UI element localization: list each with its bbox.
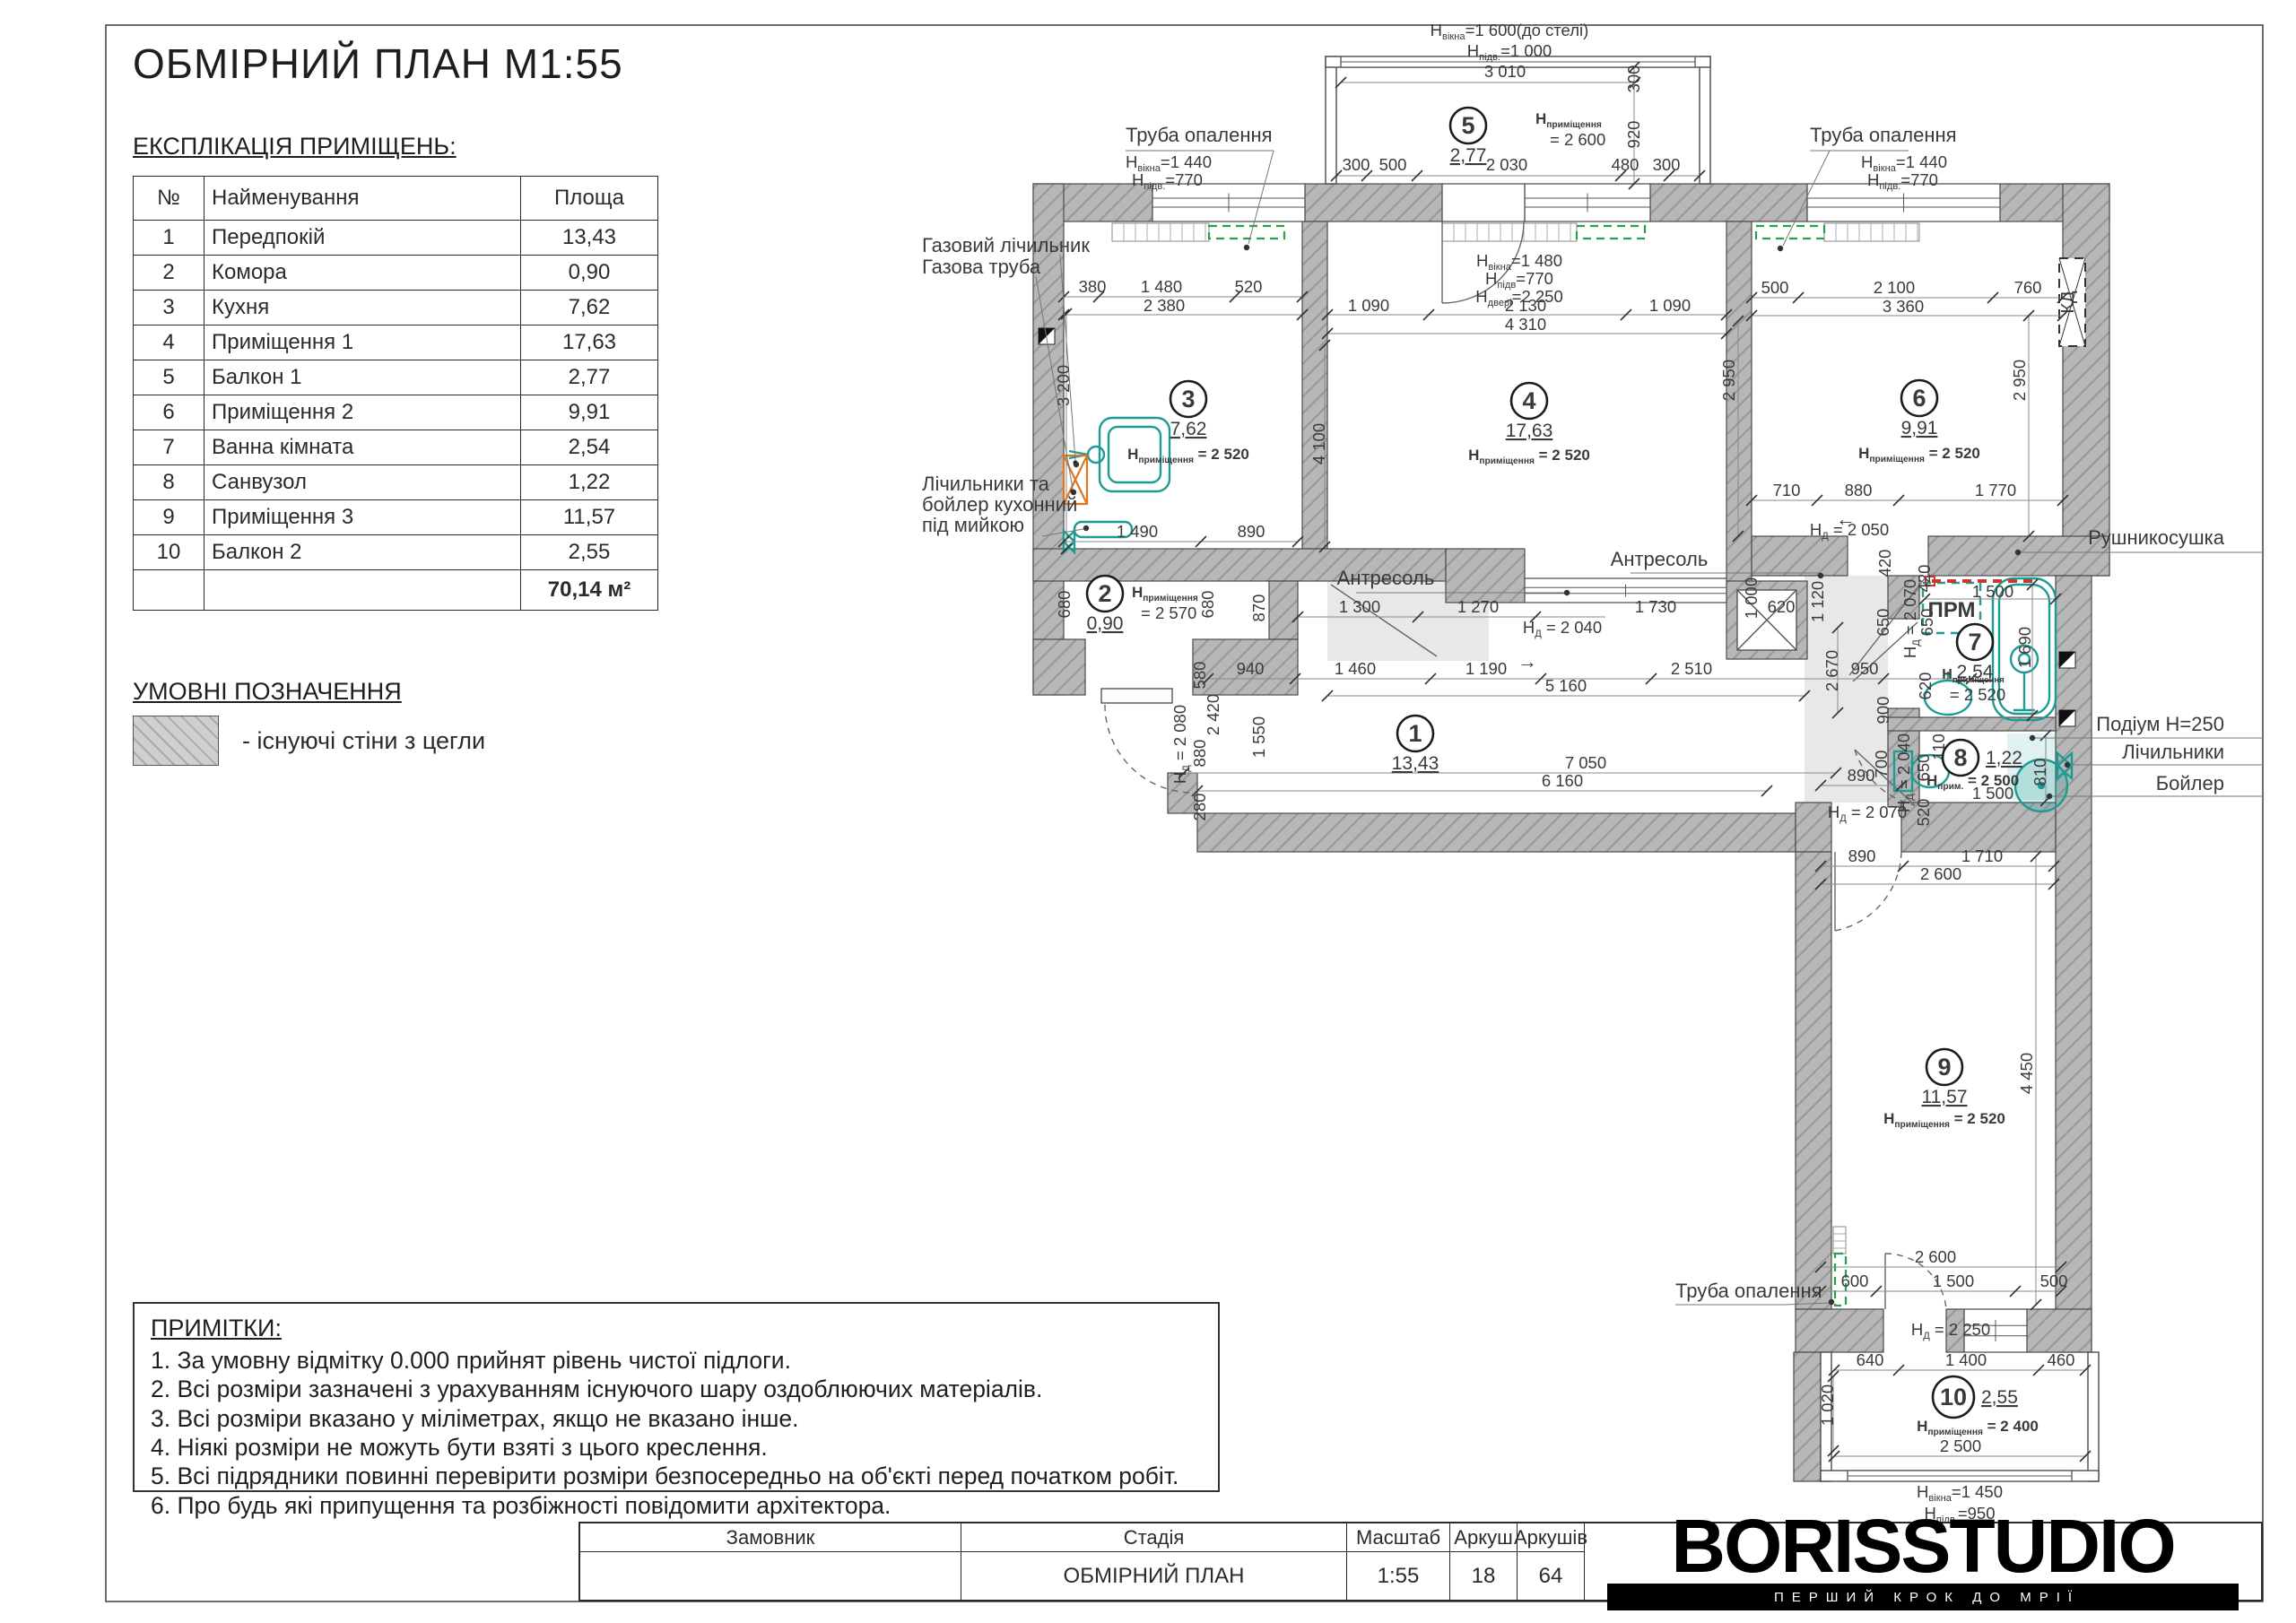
svg-text:1 490: 1 490 [1117,522,1158,541]
svg-text:1 190: 1 190 [1465,659,1507,678]
explication-table: № Найменування Площа 1Передпокій13,432Ко… [133,176,658,611]
svg-text:6 160: 6 160 [1542,771,1583,790]
table-row: 6Приміщення 29,91 [134,395,658,430]
note-item: 3. Всі розміри вказано у міліметрах, якщ… [151,1404,1202,1433]
brick-wall-swatch [133,716,219,766]
svg-text:1 480: 1 480 [1141,277,1182,296]
svg-text:Подіум Н=250: Подіум Н=250 [2096,713,2224,735]
window-glyph [1525,578,1726,603]
svg-text:Лічильники та: Лічильники та [922,473,1050,495]
svg-text:300: 300 [1653,155,1681,174]
room-marker: 417,63 [1506,383,1553,441]
scale-value: 1:55 [1347,1552,1450,1600]
sheets-label: Аркушів [1518,1523,1585,1552]
svg-text:НД = 2 040: НД = 2 040 [1523,618,1602,639]
windows-layer [1152,56,2072,1481]
svg-text:13,43: 13,43 [1392,753,1439,774]
explication-heading: ЕКСПЛІКАЦІЯ ПРИМІЩЕНЬ: [133,133,457,161]
brand-block: BORISSTUDIO ПЕРШИЙ КРОК ДО МРІЇ [1585,1523,2261,1600]
svg-text:Газовий лічильник: Газовий лічильник [922,234,1090,256]
svg-text:1 400: 1 400 [1945,1350,1987,1369]
svg-text:8: 8 [1953,744,1967,771]
table-row: 8Санвузол1,22 [134,465,658,500]
svg-text:1 500: 1 500 [1972,784,2013,803]
svg-text:Антресоль: Антресоль [1337,567,1435,589]
svg-text:1 270: 1 270 [1457,597,1499,616]
notes-box: ПРИМІТКИ: 1. За умовну відмітку 0.000 пр… [133,1302,1220,1492]
svg-text:710: 710 [1773,481,1801,499]
table-row: 1Передпокій13,43 [134,221,658,256]
svg-text:Нвікна=1 450: Нвікна=1 450 [1917,1482,2003,1504]
svg-text:870: 870 [1249,595,1268,622]
svg-text:3: 3 [1181,386,1195,412]
legend-item: - існуючі стіни з цегли [133,716,485,766]
svg-text:Труба опалення: Труба опалення [1126,124,1273,146]
svg-text:2,54: 2,54 [1957,662,1994,682]
svg-text:1 500: 1 500 [1933,1271,1974,1290]
svg-text:4: 4 [1522,387,1535,414]
svg-text:7 050: 7 050 [1565,753,1606,772]
svg-text:3 010: 3 010 [1484,62,1526,81]
svg-text:Нпідв.=1 000: Нпідв.=1 000 [1467,41,1552,63]
table-total-row: 70,14 м² [134,570,658,611]
svg-text:4 450: 4 450 [2017,1053,2036,1094]
svg-text:2,55: 2,55 [1981,1387,2018,1408]
svg-text:НД = 2 250: НД = 2 250 [1911,1320,1990,1341]
svg-text:2 500: 2 500 [1940,1436,1981,1455]
svg-text:5 160: 5 160 [1545,676,1587,695]
svg-text:Труба опалення: Труба опалення [1810,124,1957,146]
svg-text:1: 1 [1408,720,1422,747]
page-title: ОБМІРНИЙ ПЛАН М1:55 [133,39,623,88]
room-marker: 69,91 [1901,380,1938,438]
svg-text:2 950: 2 950 [1719,360,1738,401]
svg-text:2 130: 2 130 [1505,296,1546,315]
svg-text:Нприміщення = 2 520: Нприміщення = 2 520 [1883,1110,2005,1130]
table-row: 5Балкон 12,77 [134,360,658,395]
svg-text:890: 890 [1848,766,1875,785]
svg-text:880: 880 [1845,481,1873,499]
svg-text:2 950: 2 950 [2010,360,2029,401]
notes-list: 1. За умовну відмітку 0.000 прийнят ріве… [151,1346,1202,1520]
explication-body: 1Передпокій13,432Комора0,903Кухня7,624Пр… [134,221,658,611]
drawing-sheet: { "title": "ОБМІРНИЙ ПЛАН М1:55", "expli… [0,0,2296,1623]
col-name-header: Найменування [204,177,521,221]
room-marker: 52,77 [1450,108,1487,166]
svg-text:17,63: 17,63 [1506,421,1553,441]
svg-text:НД = 2 040: НД = 2 040 [1894,733,1916,812]
note-item: 1. За умовну відмітку 0.000 прийнят ріве… [151,1346,1202,1375]
svg-text:4 310: 4 310 [1505,315,1546,334]
svg-text:640: 640 [1857,1350,1884,1369]
svg-text:1 690: 1 690 [2015,627,2034,668]
table-row: 4Приміщення 117,63 [134,325,658,360]
svg-text:Нприміщення = 2 400: Нприміщення = 2 400 [1917,1418,2039,1437]
svg-text:2 100: 2 100 [1874,278,1915,297]
table-row: 10Балкон 22,55 [134,535,658,570]
svg-text:620: 620 [1916,673,1935,700]
room-marker: 113,43 [1392,716,1439,774]
svg-text:1 710: 1 710 [1961,846,2003,865]
table-row: 2Комора0,90 [134,256,658,291]
scale-label: Масштаб [1347,1523,1450,1552]
svg-text:3 360: 3 360 [1883,297,1924,316]
svg-text:950: 950 [1851,659,1879,678]
svg-text:2 420: 2 420 [1204,694,1222,735]
svg-text:280: 280 [1190,794,1209,821]
svg-text:= 2 570: = 2 570 [1141,603,1196,622]
svg-text:600: 600 [1841,1271,1869,1290]
table-row: 9Приміщення 311,57 [134,500,658,535]
svg-text:КД: КД [2058,291,2078,314]
col-area-header: Площа [521,177,658,221]
svg-text:890: 890 [1848,846,1876,865]
svg-text:680: 680 [1198,591,1217,619]
svg-text:1 730: 1 730 [1635,597,1676,616]
window-glyph [1442,184,1525,221]
svg-text:920: 920 [1624,121,1643,149]
window-glyph [1807,184,2000,221]
svg-text:НД = 2 050: НД = 2 050 [1810,520,1889,542]
sheets-value: 64 [1518,1552,1585,1600]
svg-text:10: 10 [1940,1384,1967,1410]
svg-text:1 090: 1 090 [1649,296,1691,315]
svg-text:650: 650 [1874,609,1892,637]
svg-text:Нпідв.=770: Нпідв.=770 [1132,170,1203,192]
svg-text:1 090: 1 090 [1348,296,1389,315]
svg-text:2 380: 2 380 [1144,296,1185,315]
note-item: 2. Всі розміри зазначені з урахуванням і… [151,1375,1202,1403]
svg-text:1,22: 1,22 [1986,748,2022,768]
svg-text:880: 880 [1190,740,1209,768]
svg-text:300: 300 [1343,155,1370,174]
svg-text:Рушникосушка: Рушникосушка [2088,526,2225,549]
svg-text:бойлер кухонний: бойлер кухонний [922,493,1077,516]
svg-text:1 300: 1 300 [1339,597,1380,616]
customer-label: Замовник [580,1523,961,1552]
svg-text:= 2 520: = 2 520 [1950,685,2005,704]
svg-text:300: 300 [1624,65,1643,93]
svg-text:2,77: 2,77 [1450,145,1487,166]
svg-text:520: 520 [1235,277,1263,296]
titleblock: Замовник Стадія Масштаб Аркуш Аркушів BO… [578,1522,2263,1601]
svg-text:1 460: 1 460 [1335,659,1376,678]
col-number-header: № [134,177,204,221]
svg-text:Нприміщення: Нприміщення [1535,110,1602,130]
svg-text:5: 5 [1461,112,1474,139]
svg-text:НД = 2 070: НД = 2 070 [1828,803,1907,824]
legend-item-label: - існуючі стіни з цегли [242,727,485,755]
svg-text:760: 760 [2014,278,2042,297]
table-row: 7Ванна кімната2,54 [134,430,658,465]
svg-text:Нприміщення = 2 520: Нприміщення = 2 520 [1858,445,1980,464]
svg-text:1 120: 1 120 [1808,581,1827,622]
svg-text:2: 2 [1098,580,1111,607]
svg-text:= 2 600: = 2 600 [1550,130,1605,149]
window-glyph [1152,184,1305,221]
svg-text:500: 500 [1761,278,1789,297]
stage-value: ОБМІРНИЙ ПЛАН [961,1552,1347,1600]
svg-text:Бойлер: Бойлер [2156,772,2224,794]
svg-text:Антресоль: Антресоль [1611,548,1709,570]
table-header-row: № Найменування Площа [134,177,658,221]
svg-text:890: 890 [1238,522,1265,541]
room-marker: 37,62 [1170,381,1207,439]
svg-text:2 600: 2 600 [1920,864,1961,883]
svg-text:4 100: 4 100 [1309,423,1328,464]
brand-tagline: ПЕРШИЙ КРОК ДО МРІЇ [1607,1584,2239,1610]
svg-text:1 000: 1 000 [1742,577,1761,619]
svg-text:7: 7 [1968,629,1981,655]
svg-text:Нвікна=1 600(до стелі): Нвікна=1 600(до стелі) [1431,21,1589,42]
room-marker: 72,54 [1957,624,1994,682]
sheet-value: 18 [1450,1552,1518,1600]
svg-text:6: 6 [1912,385,1926,412]
svg-text:Нприміщення: Нприміщення [1132,584,1198,603]
room-marker: 20,90 [1087,576,1124,634]
room-marker: 911,57 [1922,1049,1968,1107]
table-row: 3Кухня7,62 [134,291,658,325]
legend-heading: УМОВНІ ПОЗНАЧЕННЯ [133,678,402,706]
note-item: 6. Про будь які припущення та розбіжност… [151,1491,1202,1520]
svg-text:460: 460 [2048,1350,2075,1369]
window-glyph [1525,184,1650,221]
svg-text:620: 620 [1768,597,1796,616]
note-item: 5. Всі підрядники повинні перевірити роз… [151,1462,1202,1490]
svg-text:7,62: 7,62 [1170,419,1207,439]
svg-text:380: 380 [1079,277,1107,296]
sheet-label: Аркуш [1450,1523,1518,1552]
svg-text:під мийкою: під мийкою [922,514,1024,536]
svg-text:→: → [1518,650,1537,673]
note-item: 4. Ніякі розміри не можуть бути взяті з … [151,1433,1202,1462]
notes-heading: ПРИМІТКИ: [151,1315,1202,1342]
svg-text:Лічильники: Лічильники [2122,741,2224,763]
svg-text:1 770: 1 770 [1975,481,2016,499]
svg-text:810: 810 [2031,759,2049,786]
svg-text:1 500: 1 500 [1972,582,2013,601]
svg-text:1 550: 1 550 [1249,716,1268,758]
svg-text:Нприміщення = 2 520: Нприміщення = 2 520 [1468,447,1590,466]
svg-text:500: 500 [1379,155,1407,174]
svg-text:9,91: 9,91 [1901,418,1938,438]
customer-value [580,1552,961,1600]
svg-text:500: 500 [2040,1271,2068,1290]
svg-text:2 670: 2 670 [1822,650,1841,691]
svg-text:Нприміщення = 2 520: Нприміщення = 2 520 [1127,446,1249,465]
svg-text:580: 580 [1190,662,1209,690]
svg-text:2 030: 2 030 [1486,155,1527,174]
svg-text:Труба опалення: Труба опалення [1675,1280,1822,1302]
svg-text:480: 480 [1612,155,1639,174]
brand-logo: BORISSTUDIO [1671,1513,2174,1581]
svg-text:520: 520 [1914,799,1933,827]
svg-text:0,90: 0,90 [1087,613,1124,634]
svg-text:680: 680 [1055,591,1074,619]
window-glyph [1848,1471,2072,1481]
svg-text:Нпідв.=770: Нпідв.=770 [1867,170,1938,192]
svg-text:2 600: 2 600 [1915,1247,1956,1266]
svg-text:3 200: 3 200 [1054,365,1073,406]
room-marker: 102,55 [1933,1376,2018,1418]
svg-text:НД = 2 080: НД = 2 080 [1170,705,1192,784]
svg-text:420: 420 [1875,550,1894,577]
svg-text:11,57: 11,57 [1922,1087,1968,1107]
svg-text:Газова труба: Газова труба [922,256,1041,278]
svg-text:9: 9 [1937,1054,1951,1081]
svg-text:940: 940 [1237,659,1265,678]
stage-label: Стадія [961,1523,1347,1552]
svg-text:900: 900 [1874,697,1892,725]
svg-text:1 020: 1 020 [1818,1384,1837,1426]
svg-text:ПРМ: ПРМ [1928,598,1976,622]
svg-text:2 510: 2 510 [1671,659,1712,678]
